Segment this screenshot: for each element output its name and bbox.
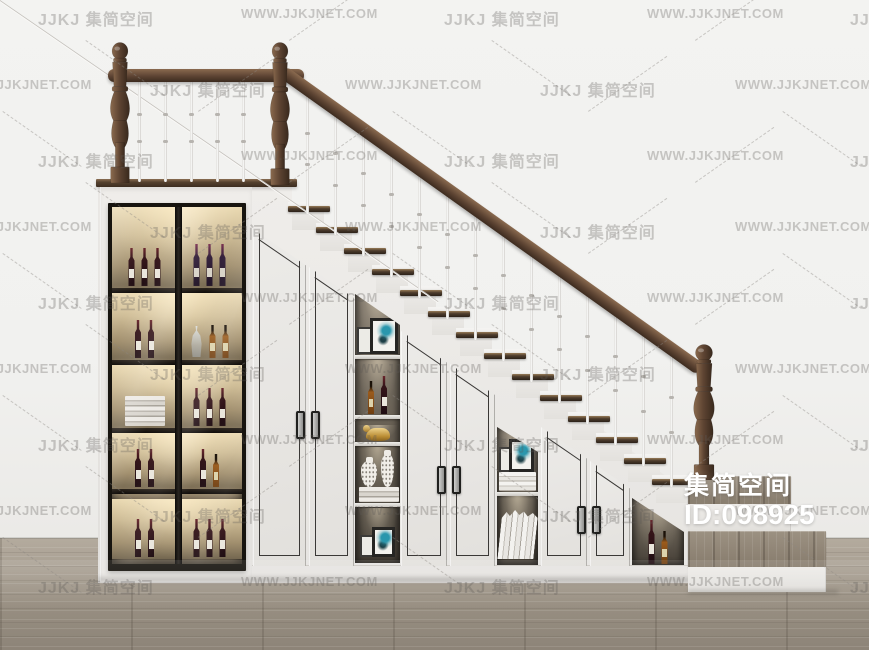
stair-tread-nosing bbox=[568, 416, 610, 422]
stair-tread-nosing bbox=[540, 395, 582, 401]
whiskey-bottle bbox=[211, 454, 221, 487]
bottom-step-riser bbox=[688, 567, 826, 592]
framed-art-pair bbox=[360, 523, 394, 557]
newel-post bbox=[266, 42, 294, 185]
niche-shelf-board bbox=[355, 442, 400, 446]
display-niche bbox=[355, 294, 400, 563]
wine-bottle bbox=[218, 388, 228, 426]
stair-tread-nosing bbox=[596, 437, 638, 443]
compartment-left-half bbox=[112, 207, 177, 288]
door-handle[interactable] bbox=[296, 411, 305, 439]
wine-bottle bbox=[153, 248, 163, 286]
baluster bbox=[558, 273, 561, 403]
compartment-left-half bbox=[112, 293, 177, 360]
wine-cabinet[interactable] bbox=[100, 187, 252, 582]
baluster bbox=[334, 113, 337, 235]
cabinet-door[interactable] bbox=[401, 331, 447, 566]
wine-bottle bbox=[133, 320, 143, 358]
wine-bottle bbox=[192, 244, 202, 286]
whiskey-bottle bbox=[366, 381, 376, 414]
compartment-left-half bbox=[112, 499, 177, 559]
book-stack bbox=[125, 396, 165, 426]
cabinet-floor-shadow bbox=[98, 577, 690, 582]
stair-tread-nosing bbox=[624, 458, 666, 464]
wine-cabinet-glass-frame[interactable] bbox=[108, 203, 246, 571]
newel-post bbox=[689, 344, 719, 480]
niche-compartment bbox=[355, 360, 400, 415]
wine-bottle bbox=[192, 519, 202, 557]
compartment-right-half bbox=[177, 499, 242, 559]
cabinet-door[interactable] bbox=[253, 229, 306, 566]
door-panel-trim bbox=[407, 331, 441, 556]
door-handle[interactable] bbox=[592, 506, 601, 534]
wine-bottle bbox=[205, 244, 215, 286]
magazine-stack bbox=[499, 472, 536, 491]
baluster bbox=[216, 81, 219, 182]
bottom-steps-shadow bbox=[688, 590, 838, 594]
niche-compartment bbox=[355, 447, 400, 503]
door-panel-trim bbox=[315, 267, 348, 556]
wine-bottle bbox=[205, 519, 215, 557]
baluster bbox=[418, 173, 421, 298]
wine-bottle bbox=[140, 248, 150, 286]
baluster bbox=[362, 133, 365, 256]
baluster bbox=[642, 333, 645, 466]
baluster bbox=[670, 353, 673, 487]
baluster bbox=[164, 81, 167, 182]
baluster bbox=[614, 313, 617, 445]
niche-shelf-board bbox=[355, 355, 400, 359]
cabinet-door[interactable] bbox=[450, 364, 495, 566]
whiskey-bottle bbox=[221, 325, 231, 358]
baluster bbox=[190, 81, 193, 182]
baluster bbox=[530, 253, 533, 382]
wine-bottle bbox=[133, 519, 143, 557]
wine-bottle bbox=[379, 376, 389, 414]
book-stack bbox=[359, 487, 399, 502]
wine-bottle bbox=[133, 449, 143, 487]
compartment-left-half bbox=[112, 433, 177, 489]
baluster bbox=[390, 153, 393, 277]
wine-cabinet-interior bbox=[112, 207, 242, 564]
wine-bottle bbox=[198, 449, 208, 487]
baluster bbox=[502, 233, 505, 361]
bottom-step-tread bbox=[688, 531, 826, 567]
whiskey-bottle bbox=[660, 531, 670, 564]
compartment-right-half bbox=[177, 433, 242, 489]
baluster bbox=[586, 293, 589, 424]
stair-tread-nosing bbox=[512, 374, 554, 380]
art-picture-frame bbox=[372, 527, 395, 557]
niche-shelf-board bbox=[355, 415, 400, 419]
niche-compartment bbox=[355, 425, 400, 442]
door-panel-trim bbox=[259, 229, 300, 556]
wine-bottle bbox=[192, 388, 202, 426]
wine-bottle bbox=[146, 320, 156, 358]
baluster bbox=[474, 213, 477, 340]
wine-bottle bbox=[127, 248, 137, 286]
baluster bbox=[446, 193, 449, 319]
door-handle[interactable] bbox=[437, 466, 446, 494]
compartment-right-half bbox=[177, 207, 242, 288]
niche-compartment bbox=[355, 508, 400, 558]
niche-shelf-board bbox=[355, 503, 400, 507]
door-handle[interactable] bbox=[577, 506, 586, 534]
scene-under-stair-wine-cabinet: JJKJ 集简空间WWW.JJKJNET.COMJJKJ 集简空间WWW.JJK… bbox=[0, 0, 869, 650]
niche-compartment bbox=[497, 496, 538, 560]
asset-id: ID:098925 bbox=[684, 500, 815, 530]
door-handle[interactable] bbox=[311, 411, 320, 439]
brand-badge: 集简空间 ID:098925 bbox=[684, 473, 815, 529]
wine-bottle bbox=[205, 388, 215, 426]
wine-bottle bbox=[146, 519, 156, 557]
wine-bottle bbox=[218, 244, 228, 286]
leaning-books bbox=[497, 509, 538, 559]
brand-name: 集简空间 bbox=[684, 473, 815, 500]
patterned-vase bbox=[381, 454, 394, 487]
wine-bottle bbox=[146, 449, 156, 487]
stair-tread-nosing bbox=[456, 332, 498, 338]
baluster bbox=[306, 93, 309, 214]
decanter bbox=[189, 326, 205, 358]
stair-tread-nosing bbox=[484, 353, 526, 359]
stair-tread-nosing bbox=[428, 311, 470, 317]
compartment-left-half bbox=[112, 365, 177, 428]
baluster bbox=[242, 81, 245, 182]
baluster bbox=[138, 81, 141, 182]
glass-door-stile bbox=[175, 207, 182, 564]
patterned-vase bbox=[361, 461, 377, 487]
whiskey-bottle bbox=[208, 325, 218, 358]
vases-on-books bbox=[357, 448, 398, 502]
newel-post bbox=[106, 42, 134, 183]
stair-tread-nosing bbox=[288, 206, 330, 212]
compartment-right-half bbox=[177, 293, 242, 360]
compartment-right-half bbox=[177, 365, 242, 428]
door-handle[interactable] bbox=[452, 466, 461, 494]
wine-bottle bbox=[647, 520, 657, 564]
art-picture-frame bbox=[370, 318, 398, 354]
gold-figurine bbox=[366, 428, 390, 441]
wine-bottle bbox=[218, 519, 228, 557]
